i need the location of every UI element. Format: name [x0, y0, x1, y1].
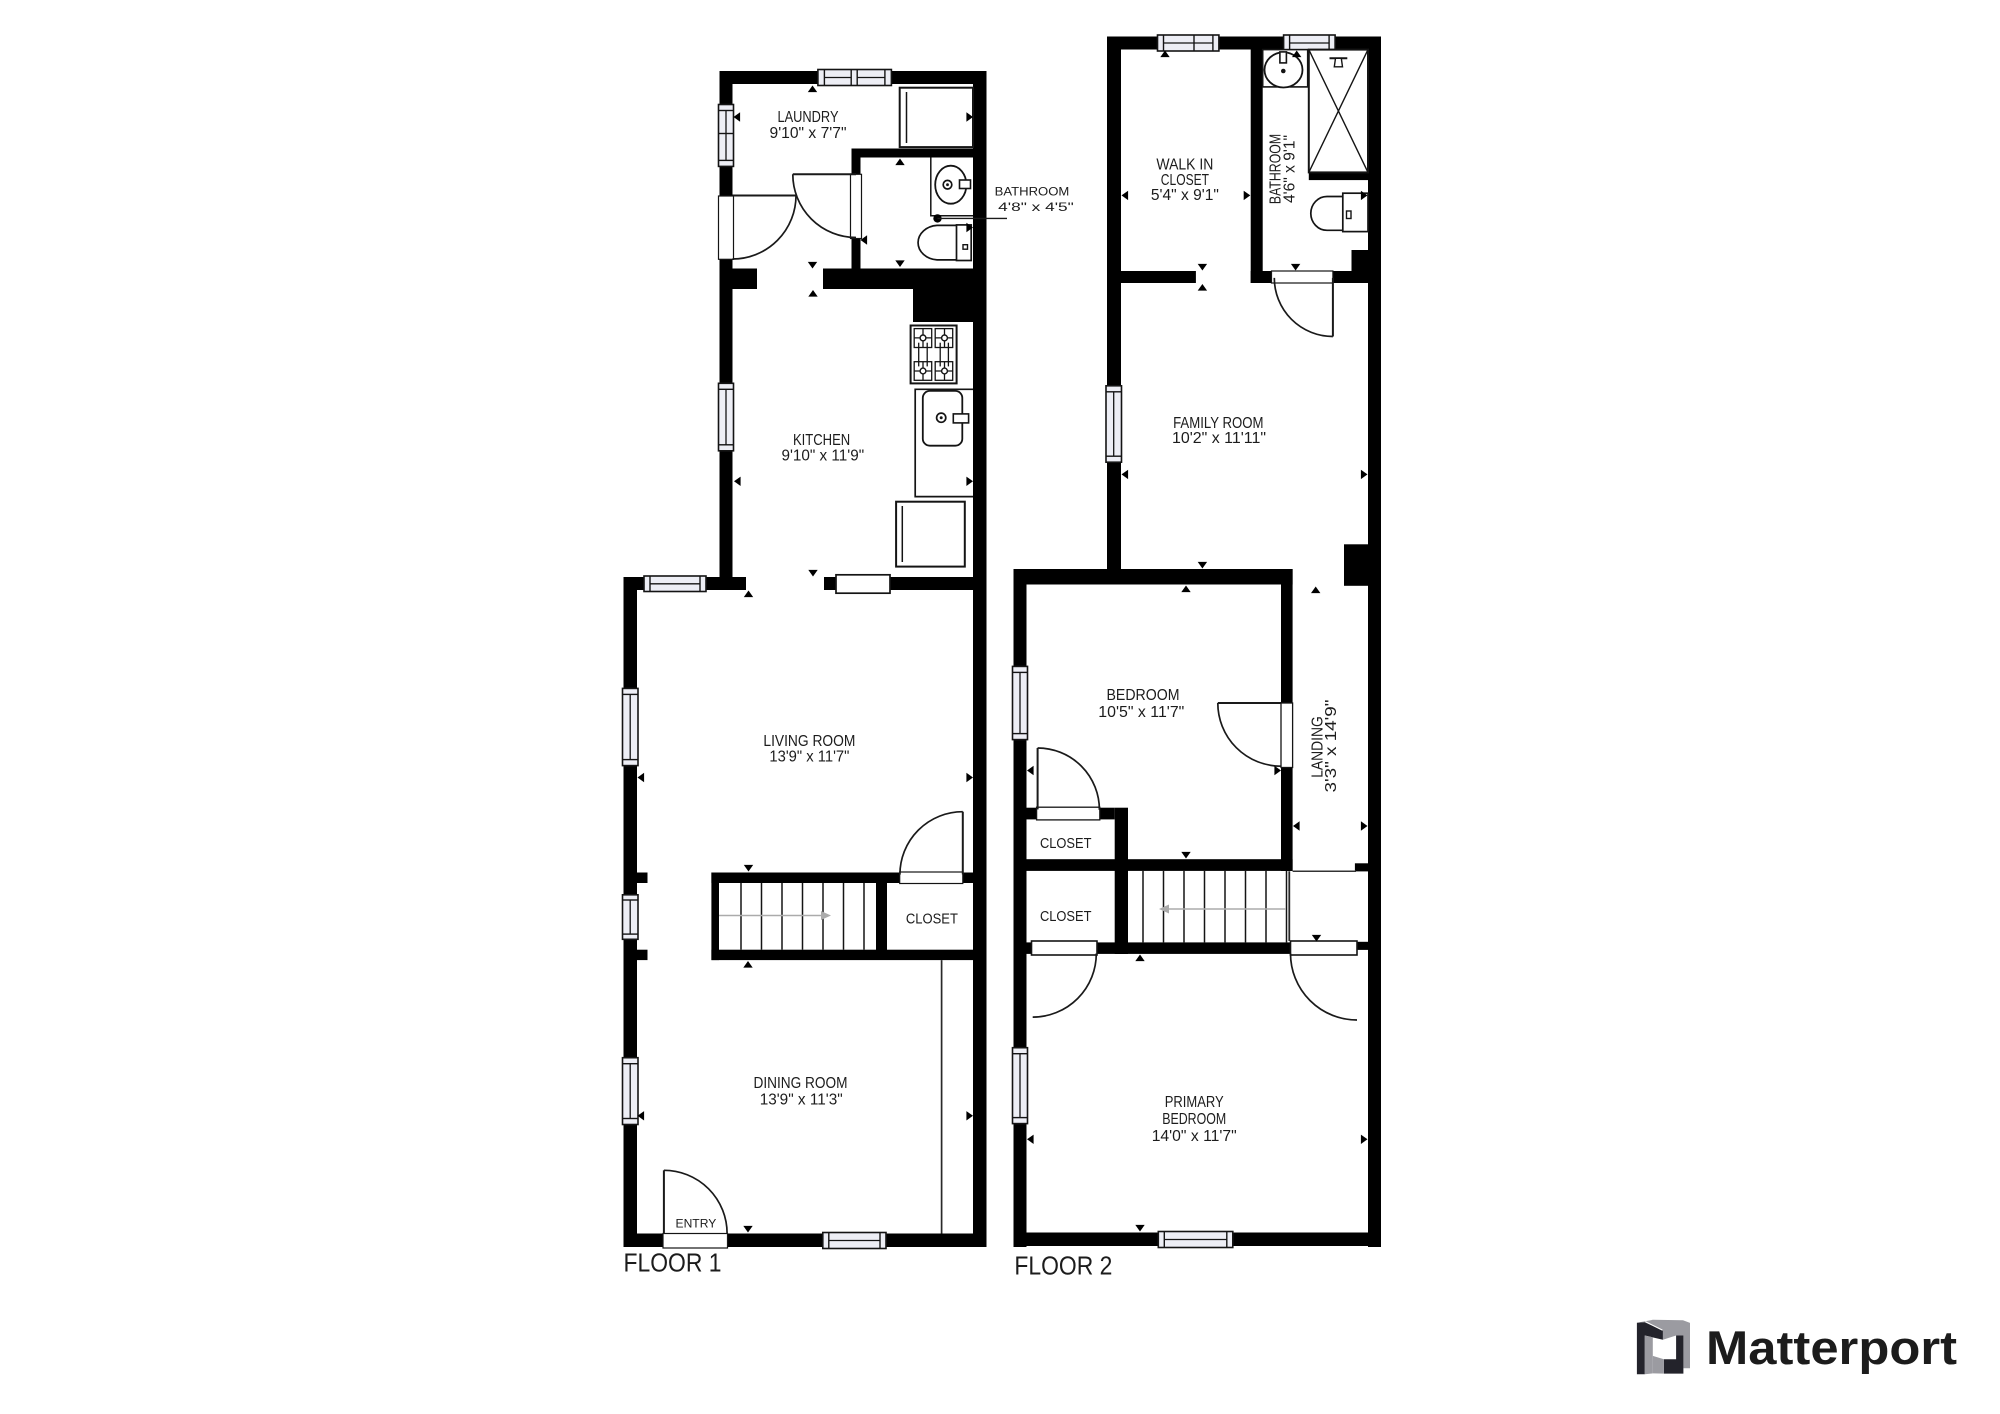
svg-text:14'0" x 11'7": 14'0" x 11'7"	[1152, 1128, 1237, 1145]
svg-text:ENTRY: ENTRY	[676, 1219, 717, 1231]
svg-text:4'6" x 9'1": 4'6" x 9'1"	[1281, 135, 1298, 203]
svg-text:13'9" x 11'7": 13'9" x 11'7"	[769, 749, 849, 766]
svg-text:4'8" x 4'5": 4'8" x 4'5"	[998, 202, 1074, 214]
svg-text:LIVING ROOM: LIVING ROOM	[763, 733, 855, 750]
svg-text:FLOOR 1: FLOOR 1	[624, 1248, 722, 1278]
svg-text:BATHROOM: BATHROOM	[995, 187, 1070, 199]
svg-text:3'3" x 14'9": 3'3" x 14'9"	[1323, 700, 1340, 793]
svg-text:10'2" x 11'11": 10'2" x 11'11"	[1172, 430, 1266, 447]
svg-text:Matterport: Matterport	[1706, 1321, 1957, 1374]
svg-text:9'10" x 7'7": 9'10" x 7'7"	[770, 125, 847, 142]
svg-text:LAUNDRY: LAUNDRY	[778, 109, 839, 126]
svg-text:CLOSET: CLOSET	[906, 912, 958, 928]
svg-text:13'9" x 11'3": 13'9" x 11'3"	[760, 1091, 843, 1108]
svg-text:9'10" x 11'9": 9'10" x 11'9"	[781, 447, 864, 464]
svg-text:CLOSET: CLOSET	[1040, 836, 1092, 852]
svg-text:PRIMARY: PRIMARY	[1165, 1094, 1224, 1111]
svg-text:FLOOR 2: FLOOR 2	[1014, 1251, 1112, 1281]
svg-text:BEDROOM: BEDROOM	[1107, 687, 1180, 704]
svg-text:BEDROOM: BEDROOM	[1162, 1111, 1226, 1128]
svg-text:10'5" x 11'7": 10'5" x 11'7"	[1098, 704, 1184, 721]
svg-text:5'4" x 9'1": 5'4" x 9'1"	[1151, 187, 1219, 204]
svg-text:CLOSET: CLOSET	[1040, 909, 1092, 925]
svg-text:DINING ROOM: DINING ROOM	[754, 1075, 848, 1092]
